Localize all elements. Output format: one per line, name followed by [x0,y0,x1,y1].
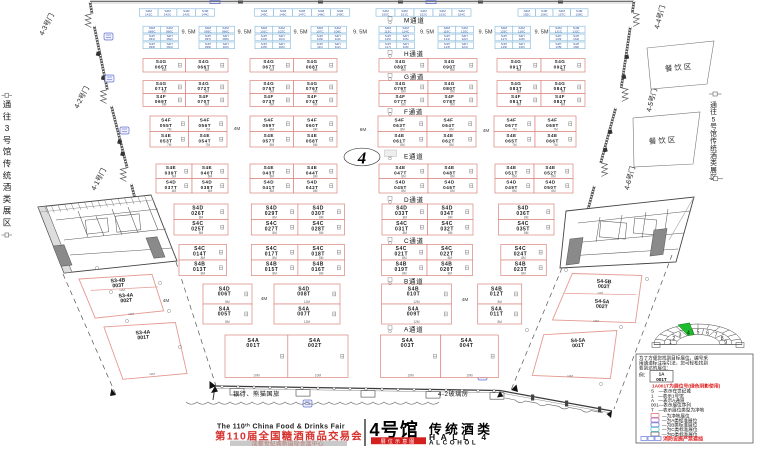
svg-text:7M: 7M [167,143,172,147]
svg-text:101C: 101C [260,29,268,33]
svg-text:8M: 8M [272,216,277,220]
svg-text:The 110th China Food & Drinks: The 110th China Food & Drinks Fair [217,422,345,430]
svg-text:7M: 7M [553,128,558,132]
svg-text:S4F: S4F [264,118,274,123]
svg-text:127I: 127I [501,37,507,41]
svg-text:S4E: S4E [264,165,274,170]
svg-text:122I: 122I [462,37,468,41]
svg-text:9: 9 [724,340,727,346]
svg-text:8M: 8M [448,216,453,220]
svg-text:12M: 12M [128,312,134,316]
svg-text:S4G: S4G [511,59,522,64]
svg-text:馆: 馆 [710,129,717,138]
svg-text:125C: 125C [500,29,508,33]
svg-text:ALCOHOL: ALCOHOL [429,440,478,446]
svg-text:S4D: S4D [545,180,556,185]
svg-text:8M: 8M [450,175,455,179]
svg-text:S4G: S4G [156,81,167,86]
svg-text:143C: 143C [183,12,191,16]
svg-text:120C: 120C [461,29,469,33]
svg-text:108C: 108C [334,29,342,33]
svg-text:9. 5M: 9. 5M [182,30,196,36]
svg-text:113C: 113C [384,29,392,33]
svg-text:133I: 133I [555,37,561,41]
svg-text:9. 5M: 9. 5M [535,30,549,36]
svg-text:S4G: S4G [198,59,209,64]
svg-text:G通道: G通道 [404,72,424,81]
svg-text:152C: 152C [420,12,428,16]
svg-text:147C: 147C [298,12,306,16]
svg-text:往: 往 [710,107,717,116]
svg-text:145C: 145C [260,12,268,16]
svg-text:S4F: S4F [511,94,521,99]
svg-text:6M: 6M [313,103,318,107]
svg-text:142C: 142C [164,12,172,16]
svg-text:S4F: S4F [200,118,210,123]
svg-text:S4E: S4E [506,133,516,138]
svg-text:008T: 008T [297,292,311,298]
svg-text:8M: 8M [319,256,324,260]
svg-text:005T: 005T [218,312,232,318]
svg-text:号: 号 [3,135,12,145]
svg-text:10M: 10M [315,374,322,378]
svg-text:102C: 102C [278,29,286,33]
svg-text:010T: 010T [407,292,421,298]
svg-text:号: 号 [710,123,717,131]
svg-text:9. 5M: 9. 5M [238,30,252,36]
svg-text:S4F: S4F [161,118,171,123]
svg-text:8M: 8M [450,68,455,72]
svg-text:8M: 8M [201,272,206,276]
svg-text:S4G: S4G [198,81,209,86]
svg-text:8M: 8M [201,256,206,260]
svg-text:S4E: S4E [307,165,317,170]
svg-text:S4E: S4E [547,133,557,138]
svg-text:S4G: S4G [444,81,455,86]
svg-text:8M: 8M [497,320,502,324]
svg-text:146C: 146C [279,12,287,16]
svg-text:089C: 089C [148,29,156,33]
svg-text:例：: 例： [639,372,648,379]
svg-text:116I: 116I [403,37,409,41]
svg-text:8M: 8M [448,231,453,235]
svg-text:6M: 6M [360,127,367,132]
svg-text:121I: 121I [444,37,450,41]
svg-text:8M: 8M [270,175,275,179]
svg-text:4M: 4M [462,297,469,302]
svg-text:6M: 6M [162,103,167,107]
svg-text:156C: 156C [540,12,548,16]
svg-text:S4F: S4F [156,94,166,99]
svg-text:8M: 8M [449,143,454,147]
svg-text:131C: 131C [555,29,563,33]
svg-text:往: 往 [3,111,12,121]
svg-text:004T: 004T [459,343,473,349]
svg-text:10M: 10M [466,374,473,378]
svg-text:S4E: S4E [307,133,317,138]
svg-text:119C: 119C [443,29,451,33]
svg-text:093I: 093I [149,45,155,49]
svg-text:6: 6 [706,330,709,336]
svg-text:S4F: S4F [555,94,565,99]
svg-text:123I: 123I [444,45,450,49]
svg-text:8M: 8M [225,320,230,324]
svg-text:007T: 007T [297,312,311,318]
svg-text:S4G: S4G [555,59,566,64]
svg-text:8M: 8M [448,256,453,260]
svg-text:S4G: S4G [263,81,274,86]
svg-text:154C: 154C [458,12,466,16]
svg-text:6M: 6M [208,175,213,179]
svg-text:12M: 12M [567,374,573,378]
svg-text:12M: 12M [304,320,311,324]
svg-text:S4F: S4F [199,94,209,99]
svg-text:124I: 124I [462,45,468,49]
svg-text:S4E: S4E [395,165,405,170]
svg-text:9. 5M: 9. 5M [294,30,308,36]
svg-text:S4F: S4F [547,118,557,123]
svg-text:002T: 002T [596,304,609,311]
svg-text:传: 传 [710,136,717,145]
svg-text:8M: 8M [199,216,204,220]
svg-text:7M: 7M [512,143,517,147]
svg-text:8M: 8M [272,256,277,260]
svg-text:104I: 104I [279,37,285,41]
svg-text:S4D: S4D [264,180,275,185]
svg-text:4号馆: 4号馆 [370,419,420,440]
svg-text:151C: 151C [401,12,409,16]
svg-text:8M: 8M [270,143,275,147]
svg-text:5: 5 [697,330,700,336]
svg-text:141C: 141C [145,12,153,16]
svg-text:8M: 8M [521,256,526,260]
svg-text:7M: 7M [206,143,211,147]
svg-text:3: 3 [5,123,10,133]
svg-text:6M: 6M [208,189,213,193]
svg-text:6M: 6M [512,175,517,179]
svg-text:8M: 8M [450,103,455,107]
svg-text:S4D: S4D [202,180,213,185]
svg-text:酒: 酒 [710,152,717,160]
svg-text:6M: 6M [270,68,275,72]
svg-text:109I: 109I [317,37,323,41]
svg-text:8M: 8M [319,231,324,235]
svg-text:D通道: D通道 [404,195,424,204]
svg-text:展: 展 [710,166,717,174]
svg-text:107C: 107C [316,29,324,33]
svg-text:S4F: S4F [307,118,317,123]
svg-text:A通道: A通道 [404,324,423,333]
svg-text:8M: 8M [561,103,566,107]
svg-text:8M: 8M [319,216,324,220]
svg-text:S4E: S4E [506,165,516,170]
svg-text:132C: 132C [572,29,580,33]
svg-text:统: 统 [3,170,12,180]
svg-text:158C: 158C [575,12,583,16]
svg-text:7M: 7M [167,128,172,132]
svg-text:5: 5 [712,116,716,123]
svg-text:157C: 157C [558,12,566,16]
svg-text:095C: 095C [204,29,212,33]
svg-text:8M: 8M [401,103,406,107]
svg-text:4M: 4M [234,126,241,131]
svg-text:S4E: S4E [166,165,176,170]
svg-text:009T: 009T [407,312,421,318]
svg-text:8M: 8M [449,128,454,132]
svg-text:011T: 011T [490,312,503,318]
svg-text:8M: 8M [313,175,318,179]
svg-text:S4F: S4F [444,94,454,99]
svg-text:S4G: S4G [263,59,274,64]
svg-text:2: 2 [672,336,675,342]
svg-text:S4E: S4E [161,133,171,138]
svg-text:8M: 8M [313,128,318,132]
svg-text:126C: 126C [518,29,526,33]
svg-text:S4F: S4F [506,118,516,123]
svg-text:118I: 118I [403,45,409,49]
svg-text:099I: 099I [205,45,211,49]
svg-text:C通道: C通道 [404,236,424,245]
svg-text:4M: 4M [483,128,490,133]
svg-text:8M: 8M [272,231,277,235]
svg-text:150C: 150C [382,12,390,16]
svg-text:6M: 6M [172,189,177,193]
svg-text:H通道: H通道 [404,49,424,58]
svg-text:8M: 8M [199,231,204,235]
svg-text:9. 5M: 9. 5M [420,30,434,36]
svg-text:135I: 135I [555,45,561,49]
svg-text:6M: 6M [205,68,210,72]
svg-text:092I: 092I [167,37,173,41]
svg-text:8M: 8M [225,300,230,304]
svg-text:096C: 096C [222,29,230,33]
svg-text:馆: 馆 [3,147,12,157]
svg-text:8M: 8M [517,103,522,107]
svg-text:银行、熊猫国旅: 银行、熊猫国旅 [233,390,280,398]
svg-text:001T: 001T [137,335,150,342]
svg-text:S4D: S4D [395,180,406,185]
svg-text:餐饮区: 餐饮区 [648,134,677,146]
svg-text:通: 通 [710,100,717,109]
svg-text:8M: 8M [401,189,406,193]
svg-text:103I: 103I [261,37,267,41]
svg-text:S4F: S4F [307,94,317,99]
svg-text:098I: 098I [223,37,229,41]
svg-text:002T: 002T [308,343,322,349]
svg-text:4M: 4M [261,296,268,301]
svg-text:8M: 8M [517,68,522,72]
svg-text:S4G: S4G [156,59,167,64]
svg-text:S4E: S4E [443,133,453,138]
svg-text:6M: 6M [172,175,177,179]
svg-text:6M: 6M [162,68,167,72]
svg-text:10M: 10M [253,374,260,378]
svg-text:094I: 094I [167,45,173,49]
svg-text:S4D: S4D [444,180,455,185]
svg-text:8M: 8M [313,143,318,147]
svg-text:S4E: S4E [444,165,454,170]
svg-text:S4G: S4G [307,59,318,64]
svg-text:006T: 006T [218,292,232,298]
svg-text:3: 3 [679,333,682,339]
svg-text:S4E: S4E [545,165,555,170]
svg-text:B通道: B通道 [404,276,423,285]
svg-text:097I: 097I [205,37,211,41]
svg-text:消防设施严禁遮挡: 消防设施严禁遮挡 [663,436,703,443]
svg-text:9. 5M: 9. 5M [353,30,367,36]
svg-text:4-2玻璃房: 4-2玻璃房 [438,390,469,398]
svg-text:传: 传 [3,159,12,169]
svg-text:153C: 153C [439,12,447,16]
svg-text:类: 类 [710,158,717,167]
svg-text:8M: 8M [401,68,406,72]
svg-text:8M: 8M [403,231,408,235]
svg-text:4: 4 [687,330,690,336]
svg-text:类: 类 [3,194,12,204]
svg-text:12M: 12M [413,320,420,324]
svg-text:6M: 6M [270,103,275,107]
svg-text:8M: 8M [400,128,405,132]
svg-text:通: 通 [3,100,12,110]
svg-text:002T: 002T [120,298,133,305]
svg-text:S4E: S4E [202,165,212,170]
svg-text:110I: 110I [335,37,341,41]
svg-text:12M: 12M [593,319,599,323]
svg-text:酒: 酒 [3,182,12,192]
svg-text:S4E: S4E [200,133,210,138]
svg-text:129I: 129I [501,45,507,49]
svg-text:136I: 136I [573,45,579,49]
svg-text:12M: 12M [413,300,420,304]
svg-text:134I: 134I [573,37,579,41]
svg-text:S4G: S4G [395,59,406,64]
svg-text:8M: 8M [400,143,405,147]
svg-text:130I: 130I [519,45,525,49]
svg-text:8M: 8M [319,272,324,276]
svg-text:E通道: E通道 [404,151,423,160]
svg-text:1A: 1A [659,372,666,377]
svg-text:S4D: S4D [506,180,517,185]
svg-text:8M: 8M [448,272,453,276]
svg-text:9. 5M: 9. 5M [479,30,493,36]
svg-text:090C: 090C [166,29,174,33]
svg-text:091I: 091I [149,37,155,41]
svg-text:001T: 001T [246,343,260,349]
svg-text:S4G: S4G [307,81,318,86]
svg-text:8M: 8M [524,216,529,220]
svg-text:8M: 8M [313,189,318,193]
svg-text:003T: 003T [598,284,611,291]
svg-text:S4G: S4G [555,81,566,86]
svg-text:统: 统 [710,144,717,153]
svg-text:8M: 8M [561,68,566,72]
svg-text:区: 区 [3,218,12,228]
svg-text:6M: 6M [512,189,517,193]
svg-text:6M: 6M [205,103,210,107]
svg-text:8M: 8M [401,175,406,179]
svg-text:001T: 001T [656,377,667,382]
svg-text:展: 展 [3,206,12,216]
svg-text:4: 4 [357,149,367,168]
svg-text:10M: 10M [407,374,414,378]
svg-text:6M: 6M [551,189,556,193]
svg-text:S4F: S4F [394,118,404,123]
svg-text:7M: 7M [553,143,558,147]
svg-text:112I: 112I [335,45,341,49]
svg-text:8M: 8M [402,272,407,276]
svg-text:S4E: S4E [394,133,404,138]
svg-text:S4G: S4G [395,81,406,86]
svg-text:6M: 6M [551,175,556,179]
svg-text:4M: 4M [163,298,170,303]
svg-text:012T: 012T [490,292,504,298]
svg-text:12M: 12M [304,300,311,304]
svg-text:8M: 8M [524,231,529,235]
svg-text:114C: 114C [402,29,410,33]
svg-text:S4F: S4F [395,94,405,99]
svg-text:001T: 001T [572,343,585,349]
svg-text:117I: 117I [385,45,391,49]
svg-text:105I: 105I [261,45,267,49]
svg-text:S4G: S4G [444,59,455,64]
svg-text:003T: 003T [401,343,415,349]
svg-text:S4D: S4D [307,180,318,185]
svg-text:115I: 115I [385,37,391,41]
svg-text:148C: 148C [317,12,325,16]
svg-text:111I: 111I [317,45,323,49]
svg-text:S4G: S4G [511,81,522,86]
svg-text:S4D: S4D [166,180,177,185]
svg-text:展位示意图: 展位示意图 [381,437,417,445]
svg-text:8M: 8M [521,272,526,276]
svg-text:8M: 8M [270,128,275,132]
svg-text:8M: 8M [402,256,407,260]
svg-text:144C: 144C [201,12,209,16]
svg-text:6M: 6M [313,68,318,72]
svg-text:F通道: F通道 [404,107,423,116]
svg-text:8M: 8M [450,189,455,193]
svg-text:8M: 8M [497,300,502,304]
svg-text:8M: 8M [403,216,408,220]
svg-text:155C: 155C [523,12,531,16]
svg-text:S4F: S4F [264,94,274,99]
svg-text:7: 7 [715,333,718,339]
svg-text:M通道: M通道 [404,15,425,24]
svg-text:100I: 100I [223,45,229,49]
svg-text:7M: 7M [512,128,517,132]
svg-text:S4E: S4E [264,133,274,138]
svg-text:149C: 149C [336,12,344,16]
svg-text:S4F: S4F [443,118,453,123]
svg-text:12M: 12M [149,372,155,376]
svg-text:128I: 128I [519,37,525,41]
svg-text:8M: 8M [270,189,275,193]
svg-text:8M: 8M [272,272,277,276]
svg-text:7M: 7M [206,128,211,132]
svg-text:106I: 106I [279,45,285,49]
